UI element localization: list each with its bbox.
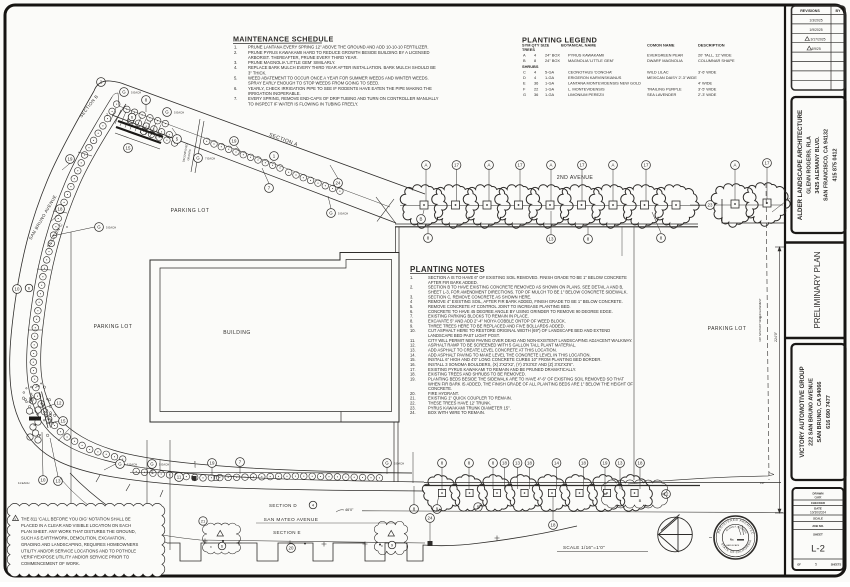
svg-text:18: 18 [581,461,586,466]
svg-text:36: 36 [534,81,538,86]
svg-text:ERIGERON KARVINSKIANUS: ERIGERON KARVINSKIANUS [568,75,622,80]
svg-text:E: E [523,81,526,86]
svg-text:17: 17 [518,163,523,168]
svg-text:24: 24 [428,516,433,521]
svg-text:GRADING AND LANDSCAPING, REQUI: GRADING AND LANDSCAPING, REQUIRES HOMEOW… [21,542,138,547]
svg-text:5 EACH: 5 EACH [338,212,348,216]
svg-text:23: 23 [708,203,713,208]
svg-text:SAN MATEO AVENUE: SAN MATEO AVENUE [264,517,319,523]
svg-text:18: 18 [502,461,507,466]
svg-text:MEXICAN DAISY 2'-3' WIDE: MEXICAN DAISY 2'-3' WIDE [647,75,697,80]
svg-text:24" BOX: 24" BOX [545,58,560,63]
svg-text:1/3/2025: 1/3/2025 [809,19,822,23]
svg-text:5 EACH: 5 EACH [131,91,141,95]
svg-text:21: 21 [201,519,206,524]
svg-text:1.: 1. [410,275,413,280]
svg-text:10/30/2024: 10/30/2024 [810,511,826,515]
svg-text:10.: 10. [410,328,416,333]
svg-text:20' TALL, 12' WIDE: 20' TALL, 12' WIDE [698,52,732,57]
svg-text:15: 15 [126,146,131,151]
svg-text:No.: No. [730,538,734,542]
svg-text:4.: 4. [234,65,237,70]
svg-text:5 EACH: 5 EACH [174,111,184,115]
svg-text:COMMENCEMENT OF WORK.: COMMENCEMENT OF WORK. [21,561,80,566]
svg-text:SAN BRUNO, CA 94066: SAN BRUNO, CA 94066 [817,382,823,443]
svg-text:GAR: GAR [815,496,823,500]
svg-text:SHEETS: SHEETS [831,563,842,567]
svg-text:19.: 19. [410,376,416,381]
svg-text:18: 18 [527,461,532,466]
svg-text:5 EACH: 5 EACH [106,226,116,230]
svg-text:LIGHT: LIGHT [194,460,197,468]
svg-text:24: 24 [336,181,341,186]
svg-text:D: D [523,75,526,80]
svg-text:L. MONTEVIDENSIS: L. MONTEVIDENSIS [568,86,605,91]
svg-text:19: 19 [68,157,73,162]
svg-text:G: G [97,225,101,230]
svg-text:8: 8 [534,58,536,63]
svg-text:A: A [612,163,615,168]
svg-text:6.: 6. [234,86,237,91]
svg-text:PARKING LOT: PARKING LOT [94,324,133,330]
svg-text:VICTORY AUTOMOTIVE GROUP: VICTORY AUTOMOTIVE GROUP [800,366,806,457]
svg-text:5 EACH: 5 EACH [127,463,137,467]
svg-text:THE 811 'CALL BEFORE YOU DIG': THE 811 'CALL BEFORE YOU DIG' NOTATION S… [21,517,131,522]
svg-text:SCALE 1/16"=1'0": SCALE 1/16"=1'0" [563,545,605,550]
svg-text:COLUMNAR SHAPE: COLUMNAR SHAPE [698,58,735,63]
svg-text:PLAN SHEET. ANY WORK THAT DIS: PLAN SHEET. ANY WORK THAT DISTURBS THE G… [21,529,136,534]
svg-text:G: G [196,156,200,161]
svg-text:18: 18 [551,523,556,528]
svg-text:MAGNOLIA 'LITTLE GEM': MAGNOLIA 'LITTLE GEM' [568,58,614,63]
svg-text:DESCRIPTION: DESCRIPTION [698,43,725,48]
svg-text:SCALE: SCALE [813,517,823,521]
svg-text:PLANTING NOTES: PLANTING NOTES [410,265,485,274]
svg-text:DWARF MAGNOLIA: DWARF MAGNOLIA [647,58,683,63]
svg-text:5-GA: 5-GA [545,69,554,74]
svg-text:B: B [639,498,642,503]
svg-text:5 EACH: 5 EACH [159,463,169,467]
svg-text:11: 11 [177,475,182,480]
svg-text:G: G [122,90,126,95]
svg-text:TREES: TREES [522,47,535,52]
svg-text:SHEET: SHEET [813,533,823,537]
svg-text:LIMONIUM PEREZII: LIMONIUM PEREZII [568,92,604,97]
svg-text:OF: OF [797,563,801,567]
svg-text:13: 13 [549,237,554,242]
svg-text:13: 13 [515,461,520,466]
svg-text:22: 22 [534,86,538,91]
svg-text:CEONOTHUS 'CONCHA': CEONOTHUS 'CONCHA' [568,69,613,74]
svg-text:BY: BY [836,9,842,13]
svg-text:14: 14 [554,461,559,466]
svg-text:COMON NAME: COMON NAME [647,43,675,48]
svg-text:4/9/25: 4/9/25 [811,47,821,51]
svg-text:REVISIONS: REVISIONS [800,9,820,13]
svg-text:x: x [381,544,383,548]
svg-text:17: 17 [580,163,585,168]
svg-text:10: 10 [15,287,20,292]
svg-text:PYRUS KAWAKAMII: PYRUS KAWAKAMII [568,52,604,57]
svg-text:1-GA: 1-GA [545,86,554,91]
svg-text:1/9/2025: 1/9/2025 [809,28,822,32]
svg-text:LANTANA MONTEVIDENSIS NEW GOL: LANTANA MONTEVIDENSIS NEW GOLD [568,81,641,86]
svg-text:13: 13 [56,479,61,484]
svg-text:3'-6' WIDE: 3'-6' WIDE [698,69,717,74]
svg-text:2'-3' WIDE: 2'-3' WIDE [698,92,717,97]
svg-text:L-2: L-2 [811,544,825,555]
svg-text:LANDSCAPE: LANDSCAPE [726,544,740,547]
svg-text:JOB NO.: JOB NO. [812,524,824,528]
svg-text:PRELIMINARY PLAN: PRELIMINARY PLAN [813,251,822,328]
svg-text:UTILITY AND/OR SERVICE LOCATIO: UTILITY AND/OR SERVICE LOCATIONS AND TO … [21,548,136,553]
svg-text:24" BOX: 24" BOX [545,52,560,57]
svg-text:BOX WITH WIRE TO REMAIN.: BOX WITH WIRE TO REMAIN. [428,410,485,415]
svg-text:A: A [734,163,737,168]
svg-text:3425 ALEMANY BLVD.: 3425 ALEMANY BLVD. [815,136,821,194]
svg-text:3'-5' WIDE: 3'-5' WIDE [698,86,717,91]
svg-text:20: 20 [289,546,294,551]
svg-text:G: G [118,462,122,467]
svg-text:415 875 0412: 415 875 0412 [833,149,839,182]
svg-text:224'0": 224'0" [774,331,778,342]
svg-text:1-GA: 1-GA [545,81,554,86]
svg-text:MAINTENANCE SCHEDULE: MAINTENANCE SCHEDULE [233,35,334,44]
svg-text:3/17/2025: 3/17/2025 [810,38,825,42]
svg-text:12: 12 [57,401,62,406]
svg-text:13: 13 [618,461,623,466]
svg-text:36: 36 [534,92,538,97]
svg-text:WHEN FIR BARK IS ADDED, THE FI: WHEN FIR BARK IS ADDED, THE FINISH GRADE… [428,381,633,386]
svg-text:x: x [210,545,212,549]
svg-text:19: 19 [232,139,237,144]
svg-text:B: B [420,217,423,222]
svg-text:G: G [165,110,169,115]
svg-text:PARKING LOT: PARKING LOT [708,326,747,332]
svg-text:GLENN ROGERS, RLA: GLENN ROGERS, RLA [807,136,813,194]
svg-text:4' WIDE: 4' WIDE [698,81,713,86]
svg-text:46'0": 46'0" [345,508,354,512]
svg-text:G: G [329,211,333,216]
svg-text:WILD LILAC: WILD LILAC [647,69,669,74]
svg-text:SECTION D: SECTION D [269,503,297,508]
svg-text:G: G [523,92,526,97]
svg-text:18: 18 [58,207,63,212]
svg-text:18: 18 [638,461,643,466]
svg-text:197': 197' [760,481,765,485]
svg-text:BOTANICAL NAME: BOTANICAL NAME [561,43,596,48]
svg-text:SAN FRANCISCO, CA 94132: SAN FRANCISCO, CA 94132 [824,129,830,201]
svg-text:15: 15 [61,419,66,424]
svg-text:B: B [523,58,526,63]
svg-text:2.: 2. [234,50,237,55]
svg-text:SEA LAVENDER: SEA LAVENDER [647,92,677,97]
svg-text:BUILDING: BUILDING [223,330,251,336]
svg-text:ALDER LANDSCAPE ARCHITECTURE: ALDER LANDSCAPE ARCHITECTURE [797,110,804,220]
svg-text:A: A [488,163,491,168]
svg-text:1-GA: 1-GA [545,75,554,80]
svg-text:17: 17 [454,163,459,168]
svg-text:2.: 2. [410,285,413,290]
svg-text:7.: 7. [234,96,237,101]
svg-text:1-GA: 1-GA [545,92,554,97]
svg-text:222 SAN BRUNO AVENUE: 222 SAN BRUNO AVENUE [809,378,815,446]
svg-text:A: A [550,163,553,168]
svg-text:A: A [523,52,526,57]
svg-text:24.: 24. [410,410,416,415]
svg-text:5 EACH: 5 EACH [394,462,404,466]
svg-text:G: G [150,462,154,467]
svg-text:G: G [385,461,389,466]
svg-text:17: 17 [644,163,649,168]
svg-text:A: A [425,163,428,168]
svg-text:C: C [523,69,526,74]
svg-text:SHRUBS: SHRUBS [522,64,539,69]
svg-text:7 EACH: 7 EACH [205,157,215,161]
svg-text:PARKING LOT: PARKING LOT [171,208,210,214]
svg-text:19: 19 [603,461,608,466]
svg-text:A: A [760,315,762,319]
svg-text:5.: 5. [234,76,237,81]
svg-text:VERIFY/EXPOSE UTILITY AND/OR S: VERIFY/EXPOSE UTILITY AND/OR SERVICE PRI… [21,555,130,560]
svg-text:REPLACE BARK MULCH EVERY THIRD: REPLACE BARK MULCH EVERY THIRD YEAR AFTE… [248,65,436,70]
svg-text:TRAILING PURPLE: TRAILING PURPLE [647,86,682,91]
svg-text:10: 10 [41,478,46,483]
svg-text:5: 5 [815,563,817,567]
svg-text:19: 19 [210,461,215,466]
svg-text:EVERGREEN PEAR: EVERGREEN PEAR [647,52,683,57]
svg-text:SUCH AS EARTHWORK, DEMOLITION,: SUCH AS EARTHWORK, DEMOLITION, EXCAVATIO… [21,536,126,541]
svg-text:2ND AVENUE: 2ND AVENUE [557,175,594,181]
svg-text:SECTION E: SECTION E [273,530,301,535]
svg-text:CHECKED: CHECKED [811,501,825,505]
svg-text:100' SANITARY SEWER EASEMENT: 100' SANITARY SEWER EASEMENT [758,298,762,342]
svg-text:PLACED IN A CLEAR AND VISIBLE: PLACED IN A CLEAR AND VISIBLE LOCATION O… [21,523,131,528]
svg-text:TO INSPECT IF WATER IS FLOWING: TO INSPECT IF WATER IS FLOWING IN TUBING… [248,101,358,106]
svg-text:11 EACH: 11 EACH [18,481,29,485]
svg-text:616 690 7477: 616 690 7477 [826,395,832,429]
svg-text:17: 17 [765,161,770,166]
svg-text:x: x [66,224,68,229]
